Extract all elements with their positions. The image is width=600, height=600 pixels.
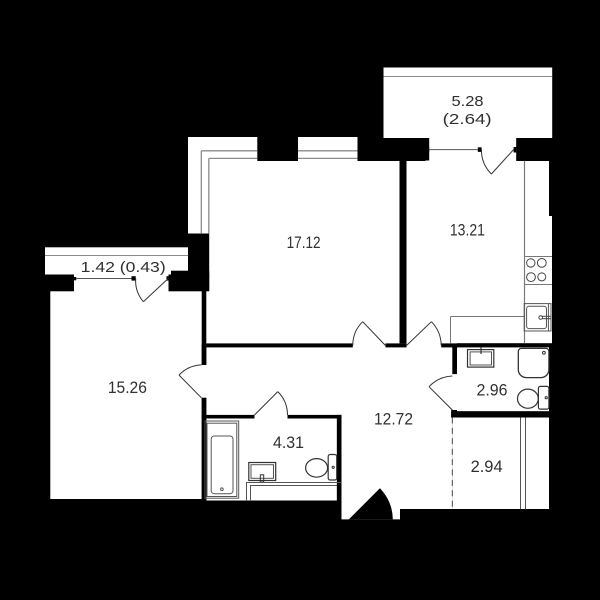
svg-text:5.28: 5.28 [452,93,484,110]
svg-text:4.31: 4.31 [273,434,304,452]
svg-text:12.72: 12.72 [374,410,413,428]
svg-text:1.42 (0.43): 1.42 (0.43) [81,259,166,276]
svg-text:2.94: 2.94 [471,458,503,476]
svg-text:17.12: 17.12 [287,234,321,252]
svg-text:13.21: 13.21 [450,222,485,240]
svg-text:(2.64): (2.64) [443,111,492,128]
svg-text:15.26: 15.26 [108,379,147,397]
svg-text:2.96: 2.96 [477,381,508,399]
